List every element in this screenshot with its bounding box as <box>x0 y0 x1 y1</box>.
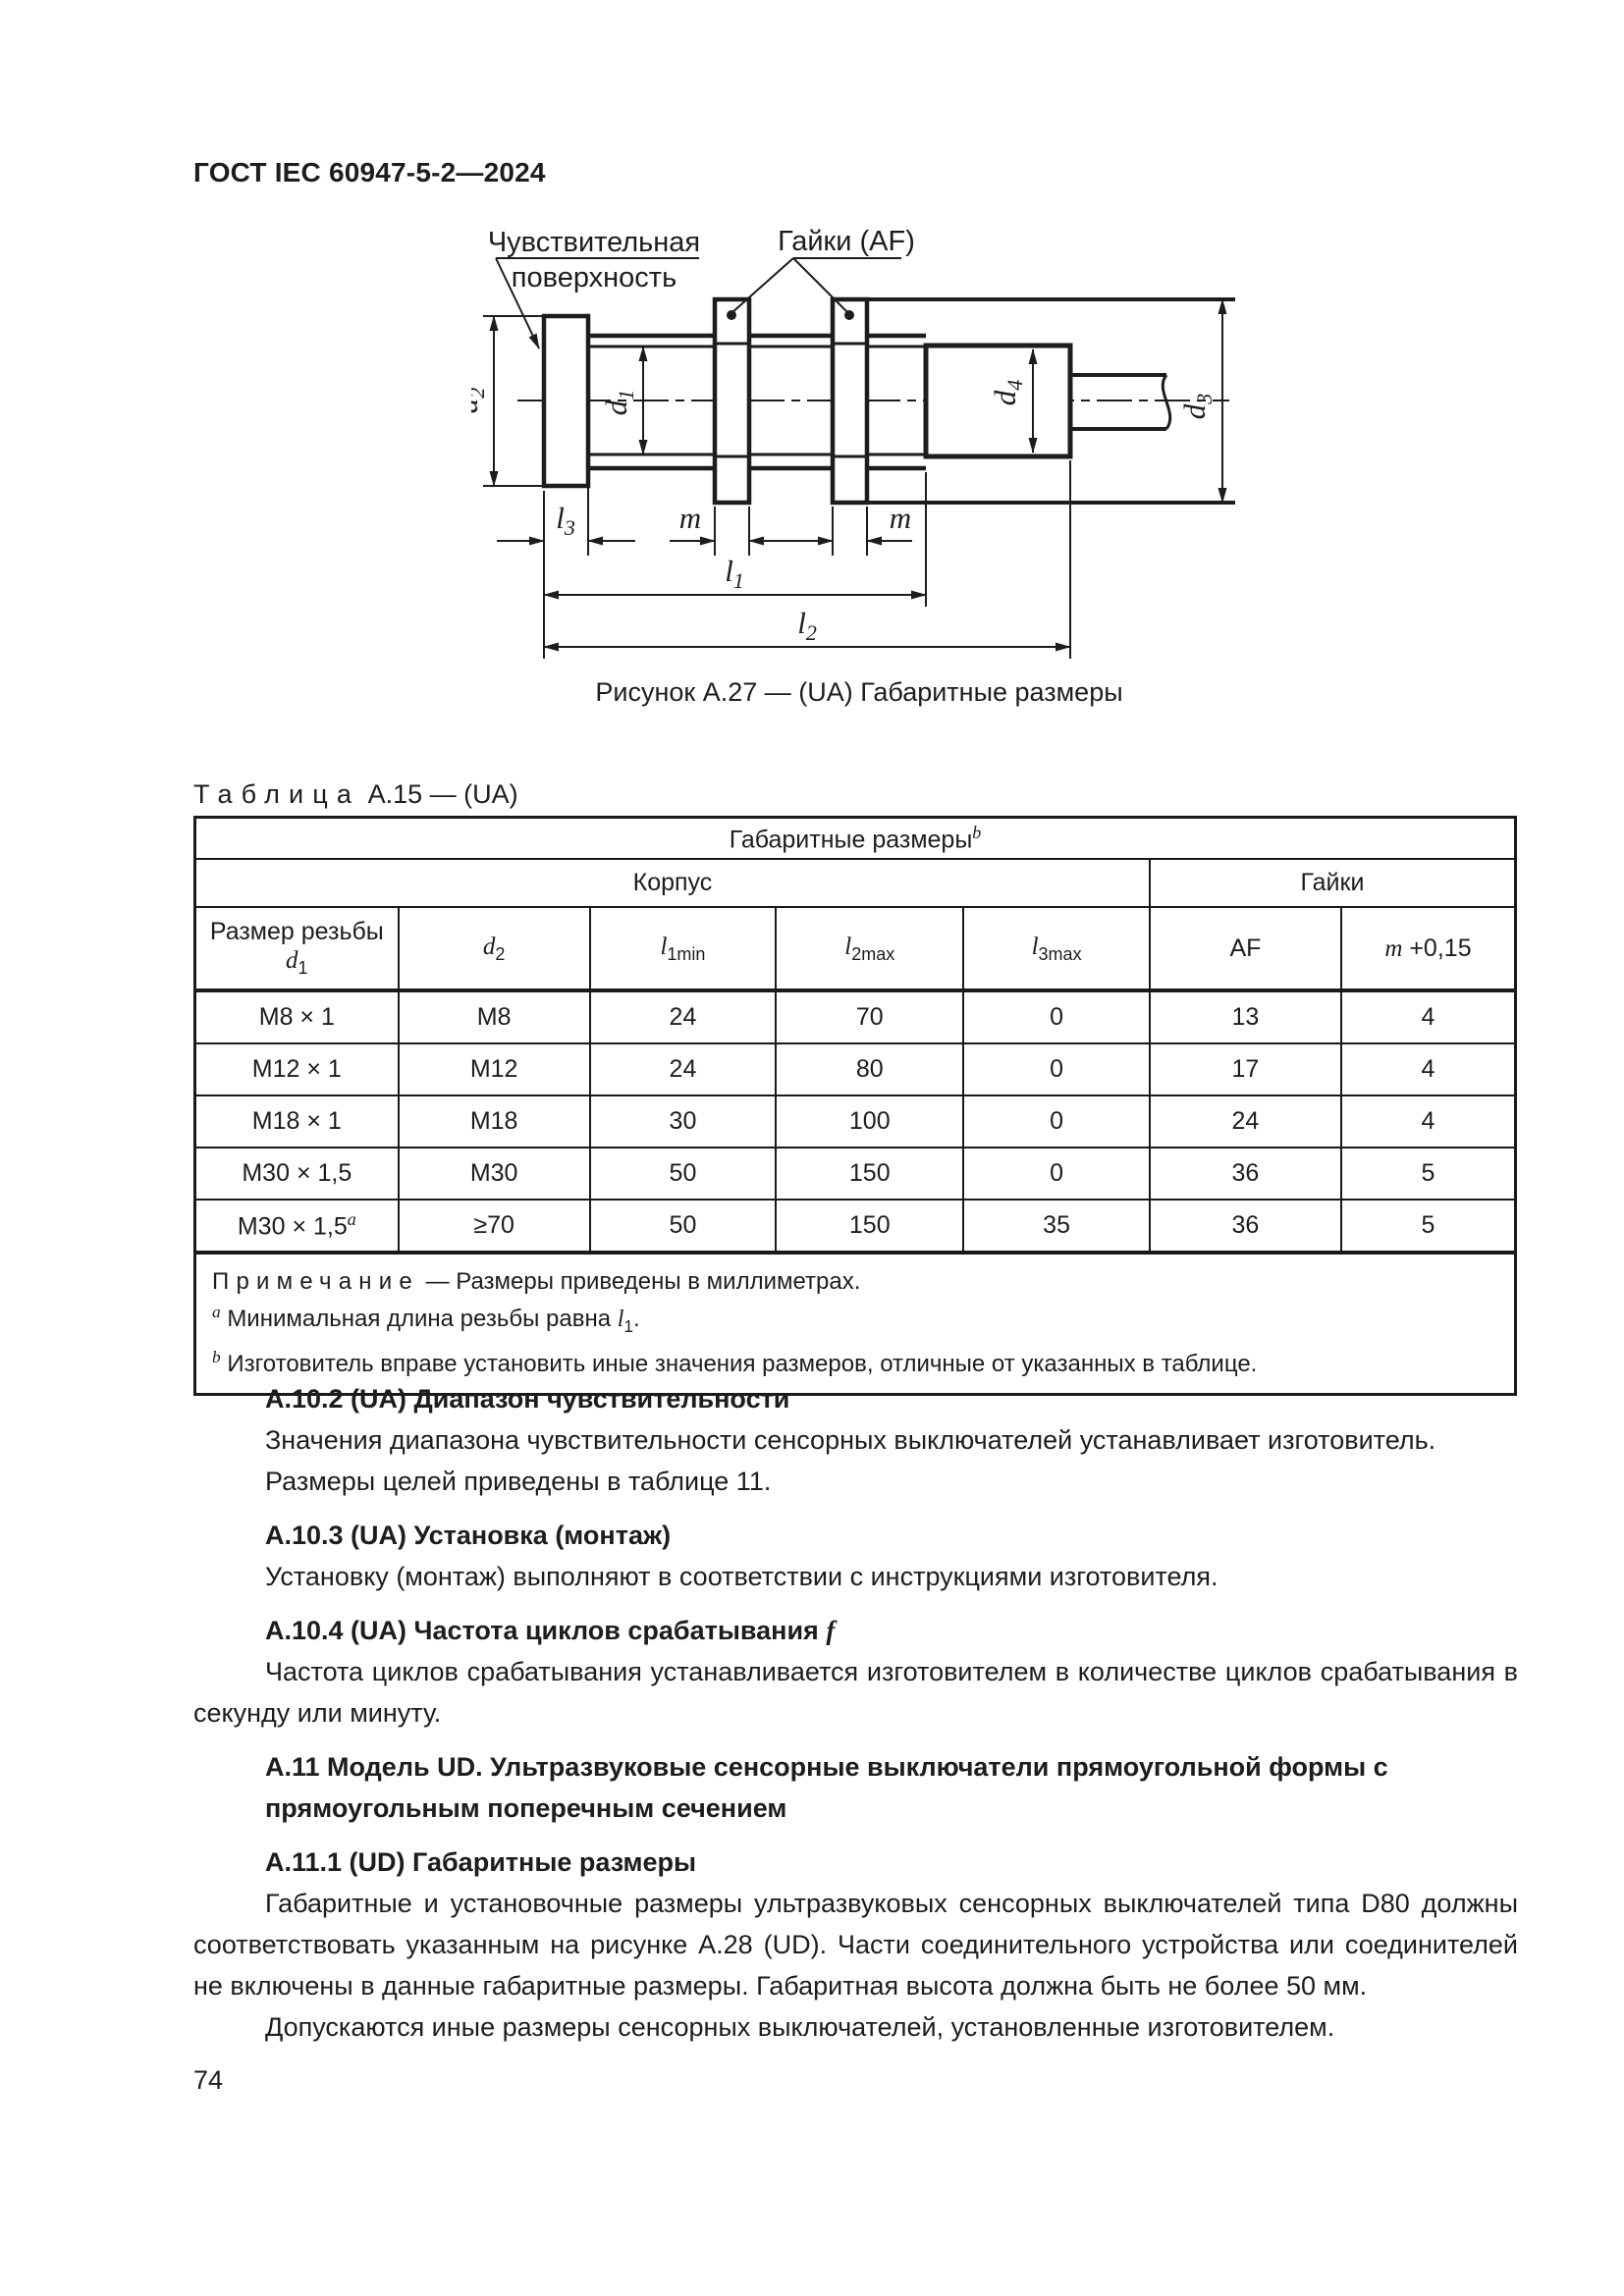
col-header-d2: d2 <box>399 907 590 990</box>
threaded-barrel <box>588 336 926 468</box>
paragraph: Размеры целей приведены в таблице 11. <box>193 1461 1518 1502</box>
sensing-surface-callout: Чувствительная поверхность <box>488 227 700 348</box>
paragraph: Частота циклов срабатывания устанавливае… <box>193 1651 1518 1734</box>
col-header-l3max: l3max <box>963 907 1150 990</box>
dimension-m-front: m <box>670 501 794 541</box>
svg-text:m: m <box>679 501 701 535</box>
dimensions-table: Габаритные размерыb Корпус Гайки Размер … <box>193 816 1517 1396</box>
table-notes: Примечание — Размеры приведены в миллиме… <box>195 1253 1516 1394</box>
dimension-l2: l2 <box>544 606 1070 647</box>
svg-text:d1: d1 <box>599 390 638 416</box>
nut-rear <box>833 299 867 503</box>
heading-a10-2: А.10.2 (UA) Диапазон чувствительности <box>193 1378 1518 1419</box>
col-header-l2max: l2max <box>776 907 963 990</box>
sensor-dimension-drawing: Чувствительная поверхность Гайки (AF) d2… <box>471 221 1247 672</box>
svg-text:Чувствительная: Чувствительная <box>488 227 700 258</box>
group-header-body: Корпус <box>195 859 1150 907</box>
table-title: Таблица А.15 — (UA) <box>193 779 518 810</box>
cable <box>1070 375 1170 429</box>
dimension-l3: l3 <box>497 501 635 541</box>
table-row: М12 × 1М1224 800174 <box>195 1043 1516 1095</box>
nuts-callout: Гайки (AF) <box>727 226 915 320</box>
svg-text:m: m <box>890 501 911 535</box>
document-page: ГОСТ IEC 60947-5-2—2024 <box>0 0 1624 2296</box>
heading-a11: А.11 Модель UD. Ультразвуковые сенсорные… <box>193 1746 1518 1829</box>
dimension-d1: d1 <box>599 347 643 454</box>
table-row: М18 × 1М1830 1000244 <box>195 1095 1516 1148</box>
col-header-l1min: l1min <box>590 907 777 990</box>
table-row: М30 × 1,5a ≥7050 15035365 <box>195 1200 1516 1253</box>
dimension-m-rear: m <box>787 501 912 541</box>
svg-text:l2: l2 <box>797 606 817 645</box>
sensing-face-flange <box>544 316 588 486</box>
svg-text:d2: d2 <box>471 388 489 414</box>
svg-text:Гайки (AF): Гайки (AF) <box>778 226 915 257</box>
dimension-l1: l1 <box>544 554 926 595</box>
col-header-m: m +0,15 <box>1341 907 1516 990</box>
svg-text:d3: d3 <box>1177 394 1217 420</box>
page-number: 74 <box>193 2065 223 2096</box>
paragraph: Допускаются иные размеры сенсорных выклю… <box>193 2006 1518 2048</box>
heading-a11-1: А.11.1 (UD) Габаритные размеры <box>193 1842 1518 1883</box>
heading-a10-3: А.10.3 (UA) Установка (монтаж) <box>193 1515 1518 1556</box>
svg-text:l3: l3 <box>556 501 575 540</box>
table-row: М8 × 1М824 700134 <box>195 990 1516 1043</box>
body-text: А.10.2 (UA) Диапазон чувствительности Зн… <box>193 1378 1518 2048</box>
document-header: ГОСТ IEC 60947-5-2—2024 <box>193 157 546 188</box>
col-header-af: AF <box>1150 907 1341 990</box>
table-row: М30 × 1,5М3050 1500365 <box>195 1148 1516 1200</box>
col-header-thread-size: Размер резьбыd1 <box>195 907 399 990</box>
paragraph: Значения диапазона чувствительности сенс… <box>193 1419 1518 1461</box>
figure-caption: Рисунок А.27 — (UA) Габаритные размеры <box>471 677 1247 708</box>
paragraph: Габаритные и установочные размеры ультра… <box>193 1883 1518 2006</box>
table-span-header: Габаритные размерыb <box>195 818 1516 860</box>
svg-text:l1: l1 <box>725 554 744 593</box>
paragraph: Установку (монтаж) выполняют в соответст… <box>193 1556 1518 1597</box>
svg-text:поверхность: поверхность <box>512 262 677 294</box>
group-header-nuts: Гайки <box>1150 859 1516 907</box>
heading-a10-4: А.10.4 (UA) Частота циклов срабатывания … <box>193 1610 1518 1651</box>
nut-front <box>715 299 749 503</box>
